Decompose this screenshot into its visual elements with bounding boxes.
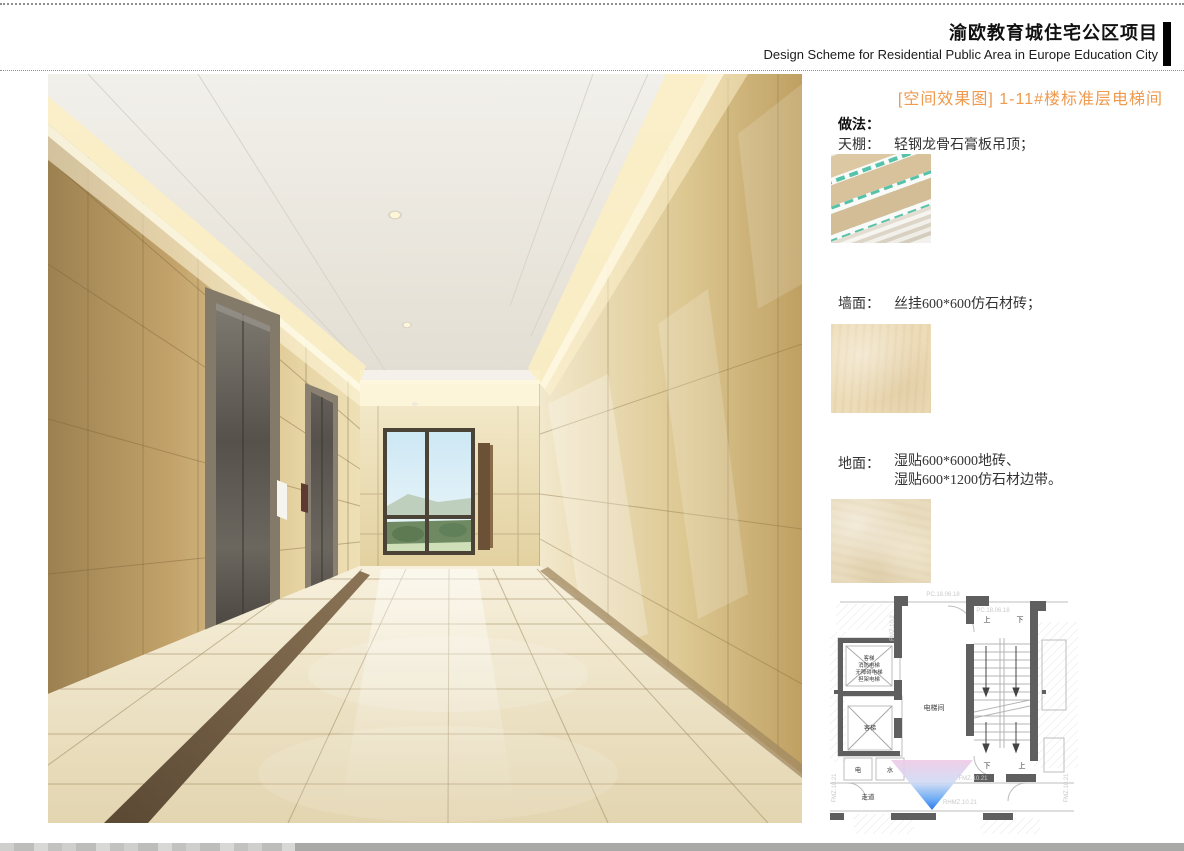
- gypsum-board-graphic: [831, 154, 931, 243]
- wall-material-image: [831, 324, 931, 413]
- method-title: 做法：: [838, 114, 880, 134]
- header-dotted-rule: [0, 70, 1184, 71]
- end-door-frame: [478, 443, 493, 550]
- label-shaft-1: 客梯: [864, 654, 875, 662]
- note-ceiling-label: 天棚：: [838, 134, 894, 154]
- label-up-top: 上: [984, 615, 991, 624]
- label-corridor: 走道: [862, 792, 876, 801]
- label-shaft2: 客梯: [864, 724, 876, 732]
- note-wall: 墙面： 丝挂600*600仿石材砖；: [838, 293, 1041, 313]
- label-down-bottom: 下: [984, 762, 991, 770]
- note-floor-label: 地面：: [838, 453, 894, 491]
- note-floor-text-1: 湿贴600*6000地砖、: [894, 453, 1062, 472]
- code-top-1: PC.18.06.18: [926, 592, 960, 598]
- bottom-bar-texture: [0, 843, 295, 851]
- label-down-top: 下: [1017, 616, 1024, 624]
- corridor-scene: [48, 74, 802, 823]
- floor-material-image: [831, 499, 931, 583]
- code-mid: FMZ.10.21: [958, 776, 988, 782]
- label-electrical: 电: [855, 765, 862, 774]
- floor-plan-drawing: 电梯间 客梯 消防电梯 无障碍电梯 担架电梯 客梯 电 水 走道 上 下 下 上…: [830, 588, 1078, 838]
- label-shaft-3: 无障碍电梯: [856, 668, 884, 676]
- note-wall-text: 丝挂600*600仿石材砖；: [894, 297, 1041, 312]
- project-title-en: Design Scheme for Residential Public Are…: [763, 47, 1158, 63]
- note-floor-text-2: 湿贴600*1200仿石材边带。: [894, 472, 1062, 491]
- key-floor-plan: 电梯间 客梯 消防电梯 无障碍电梯 担架电梯 客梯 电 水 走道 上 下 下 上…: [830, 588, 1078, 838]
- note-wall-label: 墙面：: [838, 293, 894, 313]
- note-ceiling-text: 轻钢龙骨石膏板吊顶；: [894, 138, 1034, 153]
- presentation-page: 渝欧教育城住宅公区项目 Design Scheme for Residentia…: [0, 0, 1184, 851]
- code-left-vertical: FMZ.10.2: [890, 615, 896, 641]
- project-title-cn: 渝欧教育城住宅公区项目: [763, 22, 1158, 45]
- ceiling-material-image: [831, 154, 931, 243]
- plan-stair-treads: [974, 638, 1030, 748]
- plan-stair-arrows: [983, 646, 1019, 752]
- top-dotted-rule: [0, 3, 1184, 5]
- label-shaft-2: 消防电梯: [858, 661, 880, 669]
- corridor-rendering: [48, 74, 802, 823]
- code-edge-left: FMZ.10.21: [832, 773, 838, 803]
- label-shaft-4: 担架电梯: [858, 675, 880, 683]
- code-top-2: PC.18.06.18: [976, 608, 1010, 614]
- code-bottom: RHMZ.10.21: [943, 800, 978, 806]
- header-black-bar: [1163, 22, 1171, 66]
- note-ceiling: 天棚： 轻钢龙骨石膏板吊顶；: [838, 134, 1034, 154]
- header: 渝欧教育城住宅公区项目 Design Scheme for Residentia…: [763, 22, 1158, 63]
- code-edge-right: FMZ.10.21: [1064, 773, 1070, 803]
- label-elevator-hall: 电梯间: [924, 703, 945, 712]
- page-caption: [空间效果图] 1-11#楼标准层电梯间: [898, 85, 1163, 109]
- end-window: [383, 428, 475, 555]
- bottom-grey-bar: [0, 843, 1184, 851]
- label-water: 水: [887, 765, 894, 774]
- label-up-bottom: 上: [1019, 761, 1026, 770]
- note-floor: 地面： 湿贴600*6000地砖、 湿贴600*1200仿石材边带。: [838, 453, 1062, 491]
